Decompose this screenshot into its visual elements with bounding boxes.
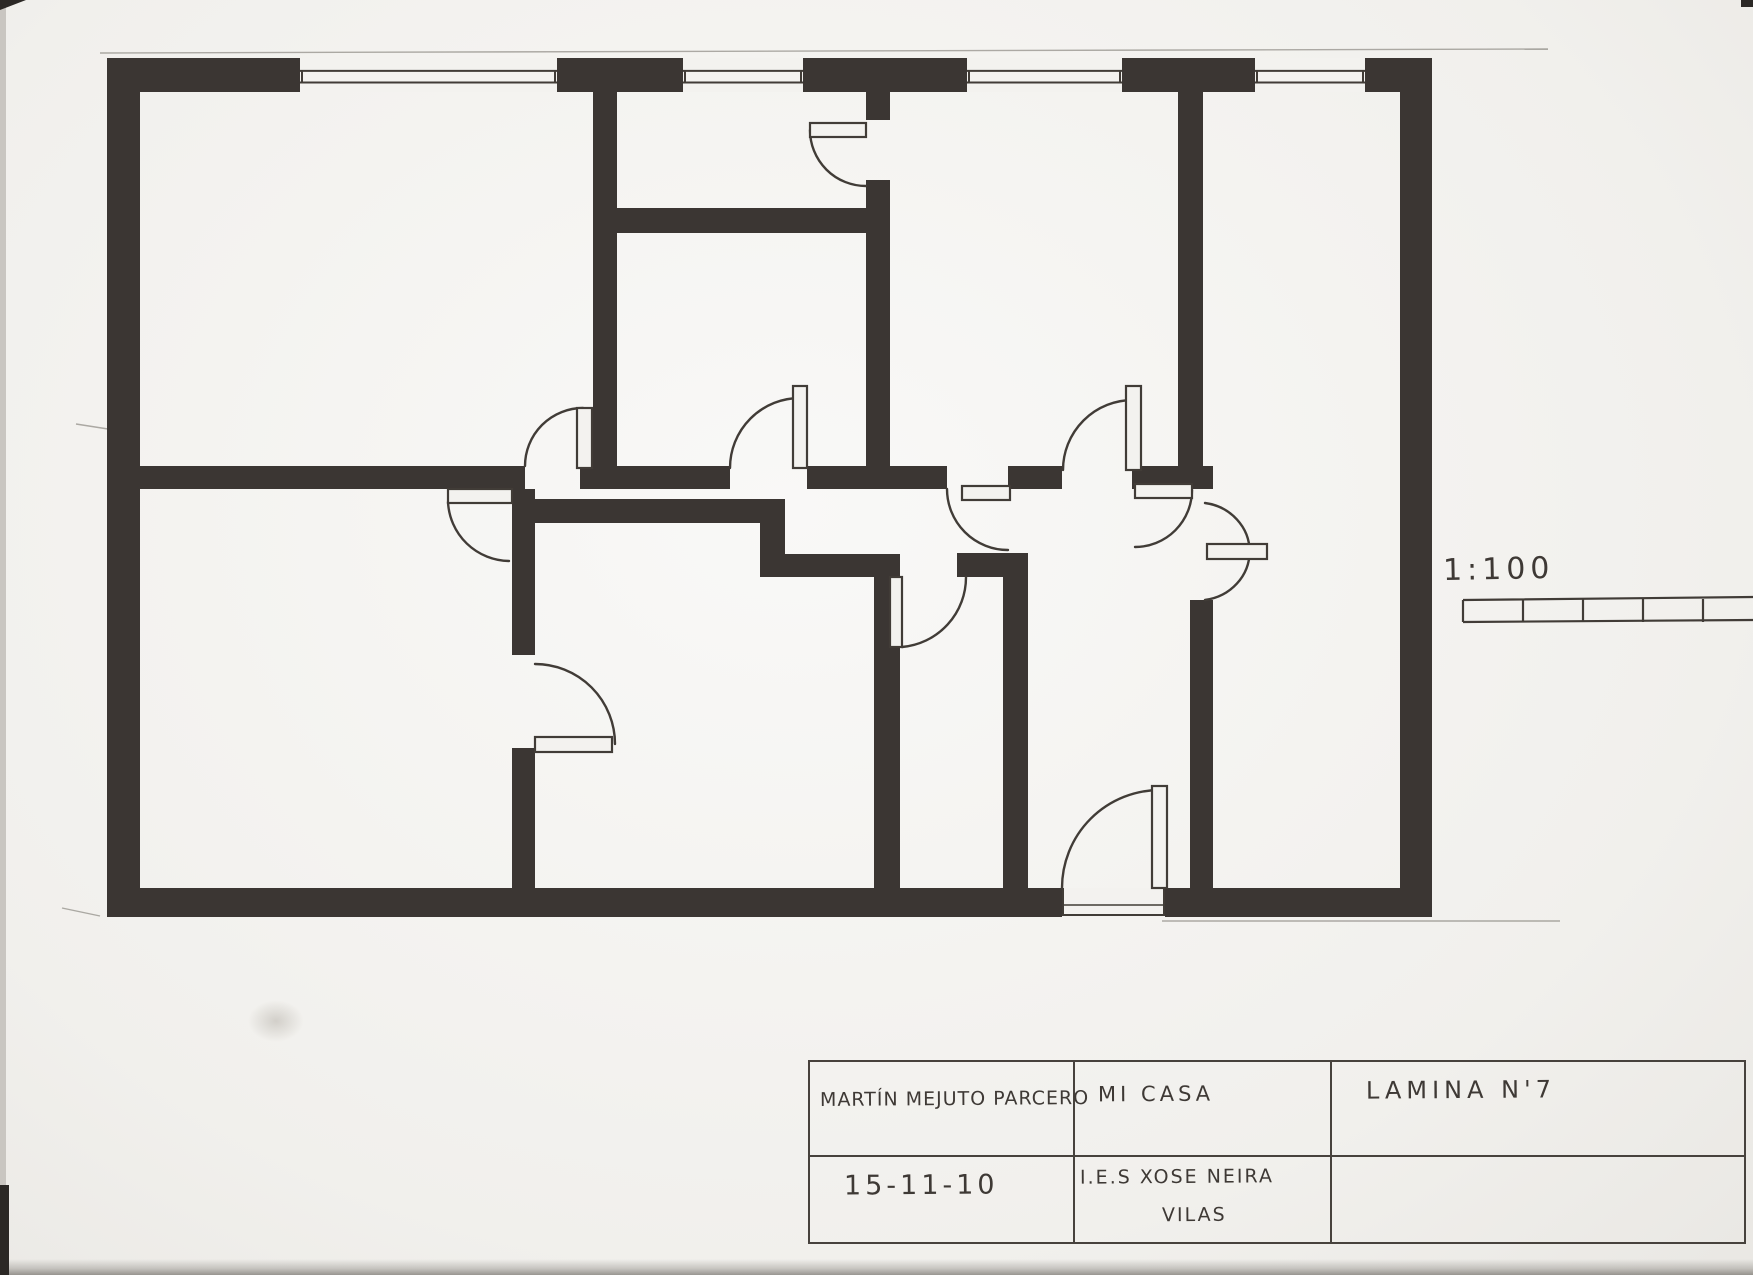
door-leaf-kitchen-top [962,486,1010,500]
school-name-line2: VILAS [1162,1204,1227,1226]
door-arc-hall-down [448,502,509,561]
door-leaf-topmid-room [810,123,866,137]
wall-exterior-top-3 [803,58,967,92]
scale-label: 1:100 [1443,551,1555,588]
door-leaf-hall-up [577,408,592,468]
wall-exterior-bottom-right [1165,888,1432,917]
title-block-divider-2 [1330,1062,1332,1242]
author-name: MARTÍN MEJUTO PARCERO [820,1087,1089,1111]
wall-topright-divider [1178,92,1203,466]
door-leaf-corridor [793,386,807,468]
school-name-line1: I.E.S XOSE NEIRA [1080,1165,1274,1188]
wall-roomk-left-b [512,748,535,888]
paper-background: 1:100 MARTÍN MEJUTO PARCERO MI CASA LAMI… [0,0,1753,1275]
wall-exterior-top-2 [557,58,683,92]
scan-corner-top-right [1741,0,1753,7]
door-arc-entrance [1062,790,1160,888]
scan-corner-bottom-left [0,1185,9,1275]
wall-roomk-step [785,554,874,577]
door-arc-roomk-east [902,577,966,647]
wall-roomk-left-a [512,489,535,655]
scan-edge-left [0,0,6,1275]
wall-exterior-top-1 [113,58,300,92]
entrance-opening [1062,888,1165,917]
door-arc-topmid-room [810,130,866,186]
wall-hall-left [1003,577,1028,888]
scan-edge-bottom [0,1259,1753,1275]
wall-exterior-top-4 [1122,58,1255,92]
door-leaf-livingroom-up [1126,386,1141,470]
door-arc-roomk-west [535,664,615,744]
door-leaf-livingroom-down [1135,484,1192,498]
door-leaf-entrance [1152,786,1167,888]
wall-exterior-bottom-left [107,888,1062,917]
wall-divider-3 [807,466,947,489]
wall-divider-4 [1008,466,1062,489]
wall-roomk-jog [760,499,785,577]
wall-topmid-right-a [866,92,890,120]
pencil-guideline [62,908,100,916]
wall-exterior-left [107,58,140,917]
date: 15-11-10 [844,1169,999,1201]
wall-topmid-left [593,92,617,466]
window-top-1 [300,58,557,92]
door-leaf-hall-down [448,489,512,503]
door-arc-hall-up [525,408,583,466]
door-leaf-bottomright [1207,544,1267,559]
wall-exterior-top-5 [1365,58,1432,92]
door-leaf-roomk-west [535,737,612,752]
door-arc-livingroom-up [1063,400,1133,470]
title-block: MARTÍN MEJUTO PARCERO MI CASA LAMINA N'7… [808,1060,1746,1244]
scale-bar [1463,597,1753,622]
pencil-guideline [76,424,108,429]
window-top-4 [1255,58,1365,92]
sheet-number: LAMINA N'7 [1366,1075,1556,1104]
wall-divider-1 [140,466,525,489]
pencil-guideline [100,49,1548,53]
wall-roomk-top [535,499,785,523]
window-top-3 [967,58,1122,92]
window-top-2 [683,58,803,92]
title-block-row-divider [810,1155,1744,1157]
wall-topmid-bottom [593,208,890,233]
door-leaf-roomk-east [890,577,902,647]
wall-exterior-right [1400,58,1432,917]
project-title: MI CASA [1098,1082,1214,1107]
wall-divider-2 [580,466,730,489]
wall-hall-left-top [957,553,1028,577]
wall-topmid-right-b [866,180,890,466]
door-arc-corridor [730,398,800,468]
wall-hall-right [1190,600,1213,888]
